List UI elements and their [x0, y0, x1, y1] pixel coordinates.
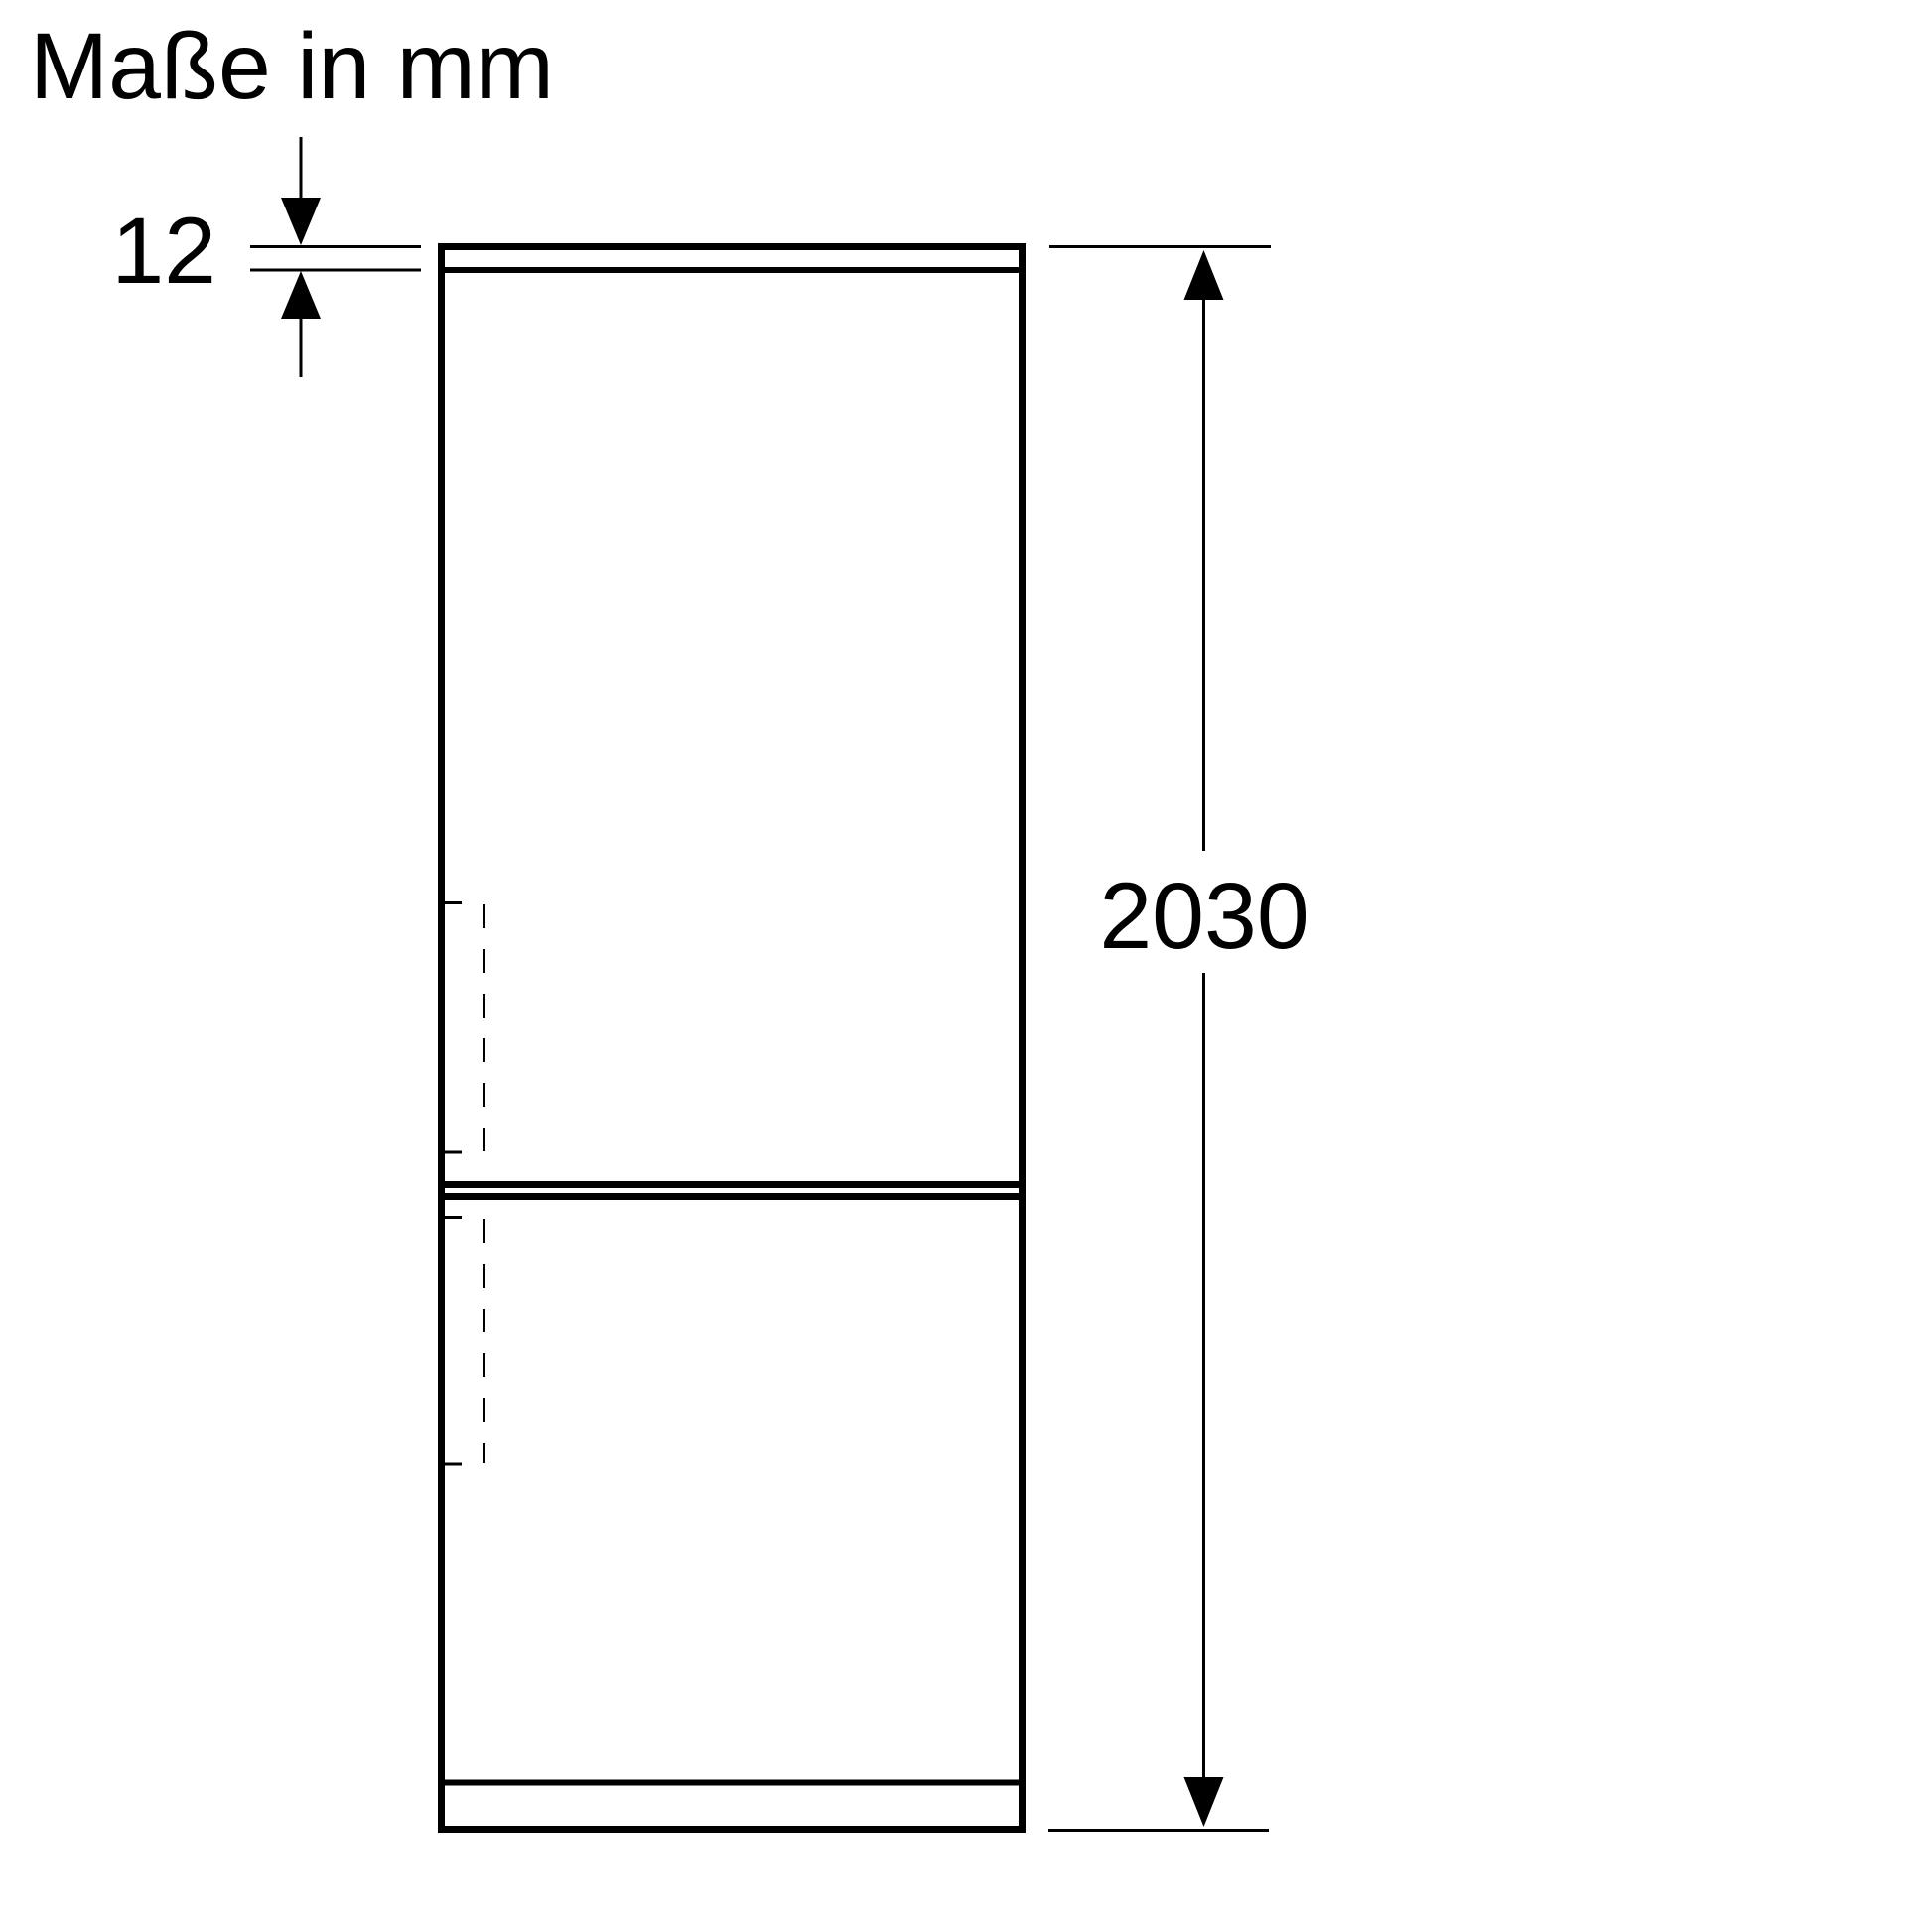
height-dimension-label: 2030: [1099, 864, 1309, 969]
dimension-diagram: Maße in mm 12 2030: [0, 0, 1932, 1932]
diagram-title: Maße in mm: [30, 14, 554, 119]
top-panel-arrowhead-down-icon: [281, 198, 321, 245]
height-arrowhead-down-icon: [1184, 1777, 1224, 1827]
top-panel-arrowhead-up-icon: [281, 271, 321, 319]
top-panel-dimension-label: 12: [111, 199, 216, 304]
appliance-body-outline: [442, 247, 1023, 1830]
height-arrowhead-up-icon: [1184, 250, 1224, 300]
appliance-outline-drawing: Maße in mm 12 2030: [0, 0, 1932, 1932]
